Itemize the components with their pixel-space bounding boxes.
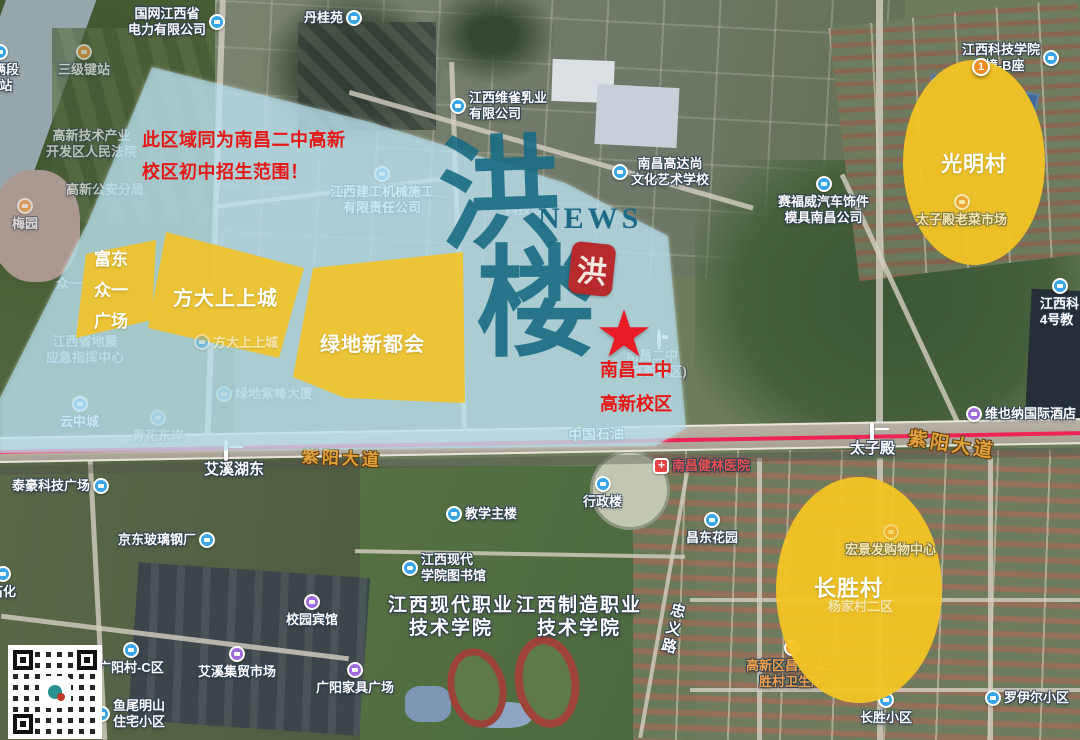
library-icon bbox=[402, 560, 418, 576]
poi-taizidian-market: 太子殿老菜市场 bbox=[916, 194, 1007, 228]
station-label-aixihudong: 艾溪湖东 bbox=[204, 462, 264, 478]
qr-finder bbox=[13, 714, 33, 734]
building-icon bbox=[346, 10, 362, 26]
station-label-taizidian: 太子殿 bbox=[850, 441, 895, 457]
factory-icon bbox=[199, 532, 215, 548]
poi-shihua: 石化 bbox=[0, 566, 16, 600]
poi-jxkjxy-4: 江西科4号教 bbox=[1040, 278, 1079, 328]
poi-saifuwei: 赛福威汽车饰件模具南昌公司 bbox=[778, 176, 869, 226]
qr-finder bbox=[77, 650, 97, 670]
zone-guangming-village: 光明村 bbox=[903, 60, 1045, 265]
poi-fangda-map-label: 方大上上城 bbox=[194, 332, 278, 351]
school-label-line1: 南昌二中 bbox=[600, 356, 672, 382]
zone-fudong-plaza: 富东众一广场 bbox=[70, 238, 158, 342]
campus-icon bbox=[446, 506, 462, 522]
road bbox=[876, 0, 883, 445]
zone-lvdi: 绿地新都会 bbox=[288, 246, 470, 408]
campus-icon bbox=[595, 476, 611, 492]
poi-luoyier: 罗伊尔小区 bbox=[985, 690, 1069, 706]
poi-yuwei-mingshan: 鱼尾明山住宅小区 bbox=[94, 698, 165, 730]
temple-icon bbox=[954, 194, 970, 210]
poi-danguiyuan: 丹桂苑 bbox=[304, 10, 362, 26]
poi-teaching-building: 教学主楼 bbox=[446, 506, 517, 522]
residence-icon bbox=[704, 512, 720, 528]
market-icon bbox=[347, 662, 363, 678]
poi-modern-library: 江西现代学院图书馆 bbox=[402, 552, 486, 584]
residence-icon bbox=[123, 642, 139, 658]
market-icon bbox=[883, 524, 899, 540]
poi-admin-building: 行政楼 bbox=[583, 476, 622, 510]
numbered-pin-1: 1 bbox=[972, 58, 990, 76]
poi-guowang-electric: 国网江西省电力有限公司 bbox=[128, 6, 225, 38]
qr-center-logo bbox=[39, 676, 71, 708]
building-icon bbox=[1052, 278, 1068, 294]
poi-guangyang-c: 广阳村-C区 bbox=[98, 642, 164, 676]
poi-aixi-market: 艾溪集贸市场 bbox=[198, 646, 276, 680]
notice-text-line2: 校区初中招生范围！ bbox=[142, 158, 309, 184]
market-icon bbox=[229, 646, 245, 662]
poi-zhizao-college: 江西制造职业技术学院 bbox=[516, 594, 642, 640]
satellite-map-image: 国网江西省电力有限公司 丹桂苑 三级键站 车辆段场站 高新技术产业开发区人民法院… bbox=[0, 0, 1080, 740]
company-icon bbox=[93, 478, 109, 494]
poi-hongjing-center: 宏景发购物中心 bbox=[845, 524, 936, 558]
temple-icon bbox=[76, 44, 92, 60]
hotel-icon bbox=[304, 594, 320, 610]
residence-icon bbox=[985, 690, 1001, 706]
zone-changsheng-village: 长胜村 bbox=[776, 477, 942, 703]
residence-icon bbox=[194, 334, 210, 350]
poi-vienna-hotel: 维也纳国际酒店 bbox=[966, 406, 1076, 422]
gas-icon bbox=[0, 566, 11, 582]
terrain-pond-campus1 bbox=[405, 686, 451, 722]
poi-jianlin-hospital: 南昌健林医院 bbox=[653, 458, 750, 474]
metro-depot-icon bbox=[0, 44, 8, 60]
hospital-icon bbox=[653, 458, 669, 474]
notice-text-line1: 此区域同为南昌二中高新 bbox=[142, 126, 346, 152]
poi-changdong-garden: 昌东花园 bbox=[686, 512, 738, 546]
poi-guangyang-furniture: 广阳家具广场 bbox=[316, 662, 394, 696]
watermark-seal-char: 洪 bbox=[575, 246, 609, 293]
school-label-line2: 高新校区 bbox=[600, 390, 672, 416]
qr-code bbox=[8, 645, 102, 739]
poi-jingdong-factory: 京东玻璃钢厂 bbox=[118, 532, 215, 548]
building-icon bbox=[209, 14, 225, 30]
poi-taihao-plaza: 泰豪科技广场 bbox=[12, 478, 109, 494]
factory-icon bbox=[816, 176, 832, 192]
watermark-news: NEWS bbox=[538, 202, 642, 236]
building-icon bbox=[1043, 50, 1059, 66]
poi-xiandai-college: 江西现代职业技术学院 bbox=[388, 594, 514, 640]
poi-campus-hotel: 校园宾馆 bbox=[286, 594, 338, 628]
hotel-icon bbox=[966, 406, 982, 422]
watermark-seal: 洪 bbox=[567, 241, 616, 297]
qr-finder bbox=[13, 650, 33, 670]
poi-yangjiacun: 杨家村二区 bbox=[828, 596, 893, 615]
